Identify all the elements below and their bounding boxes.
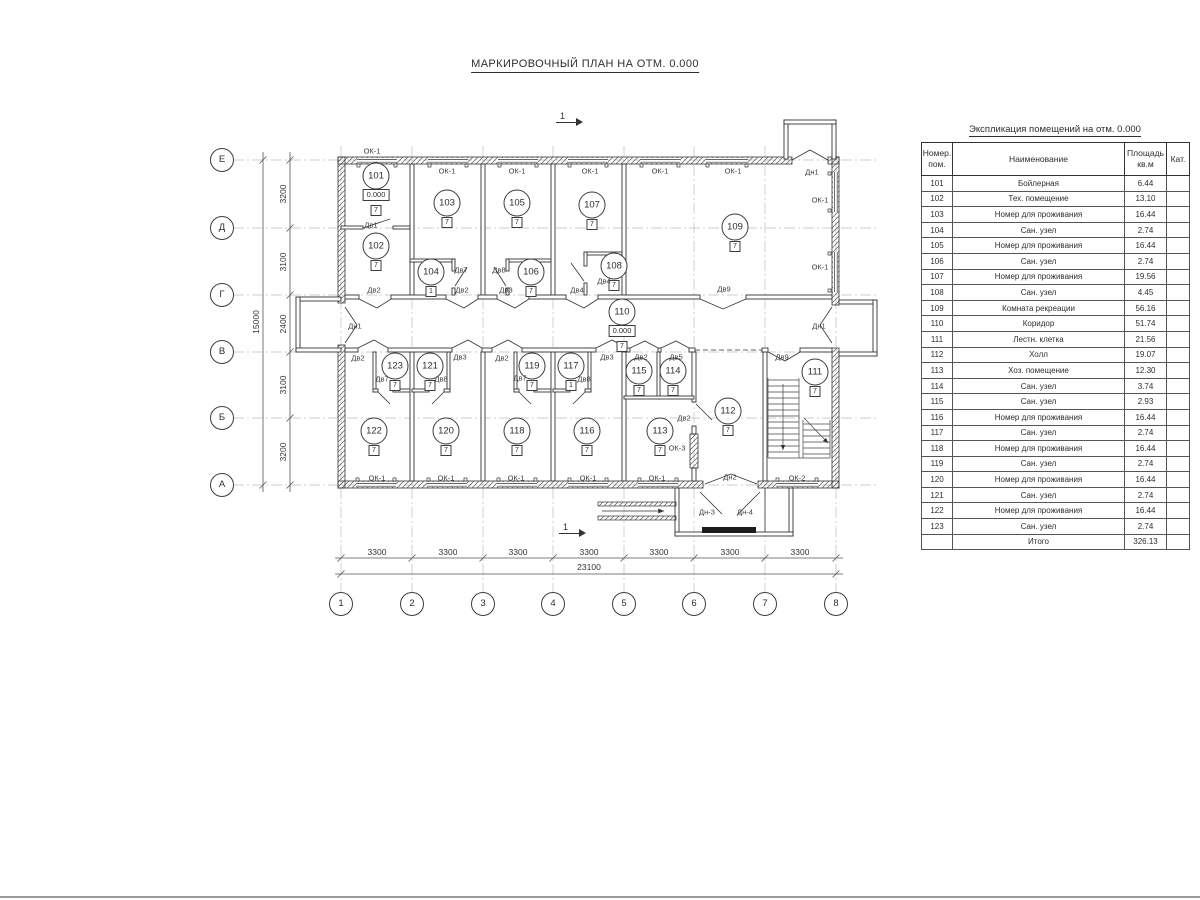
schedule-row: 123Сан. узел2.74: [922, 519, 1190, 535]
room-number-cell: 122: [922, 503, 953, 519]
schedule-row: 111Лестн. клетка21.56: [922, 331, 1190, 347]
schedule-row: 112Холл19.07: [922, 347, 1190, 363]
schedule-row: 110Коридор51.74: [922, 316, 1190, 332]
room-number-cell: 121: [922, 487, 953, 503]
room-category-cell: [1167, 456, 1190, 472]
room-area-cell: 19.56: [1125, 269, 1167, 285]
room-name-cell: Сан. узел: [953, 253, 1125, 269]
room-area-cell: 2.74: [1125, 222, 1167, 238]
schedule-row: 118Номер для проживания16.44: [922, 441, 1190, 457]
page-edge-line: [0, 896, 1200, 898]
room-area-cell: 4.45: [1125, 285, 1167, 301]
entrance-threshold: [702, 527, 756, 533]
schedule-row: 109Комната рекреации56.16: [922, 300, 1190, 316]
room-category-cell: [1167, 363, 1190, 379]
room-area-cell: 2.74: [1125, 519, 1167, 535]
room-area-cell: 13.10: [1125, 191, 1167, 207]
room-area-cell: 12.30: [1125, 363, 1167, 379]
room-name-cell: Коридор: [953, 316, 1125, 332]
room-number-cell: 108: [922, 285, 953, 301]
col-header-number: Номер.пом.: [922, 143, 953, 176]
room-name-cell: Бойлерная: [953, 176, 1125, 192]
schedule-row: 108Сан. узел4.45: [922, 285, 1190, 301]
room-name-cell: Хоз. помещение: [953, 363, 1125, 379]
room-name-cell: Номер для проживания: [953, 207, 1125, 223]
room-category-cell: [1167, 378, 1190, 394]
room-category-cell: [1167, 269, 1190, 285]
room-name-cell: Сан. узел: [953, 425, 1125, 441]
total-label: Итого: [953, 534, 1125, 550]
room-number-cell: 102: [922, 191, 953, 207]
col-header-name: Наименование: [953, 143, 1125, 176]
room-area-cell: 19.07: [1125, 347, 1167, 363]
room-name-cell: Номер для проживания: [953, 409, 1125, 425]
room-name-cell: Лестн. клетка: [953, 331, 1125, 347]
room-area-cell: 16.44: [1125, 207, 1167, 223]
room-category-cell: [1167, 519, 1190, 535]
room-area-cell: 16.44: [1125, 441, 1167, 457]
room-number-cell: 107: [922, 269, 953, 285]
schedule-row: 114Сан. узел3.74: [922, 378, 1190, 394]
room-category-cell: [1167, 285, 1190, 301]
room-number-cell: 109: [922, 300, 953, 316]
col-header-area: Площадькв.м: [1125, 143, 1167, 176]
room-area-cell: 2.93: [1125, 394, 1167, 410]
room-number-cell: 106: [922, 253, 953, 269]
schedule-row: 113Хоз. помещение12.30: [922, 363, 1190, 379]
room-category-cell: [1167, 425, 1190, 441]
room-area-cell: 16.44: [1125, 238, 1167, 254]
room-category-cell: [1167, 316, 1190, 332]
room-category-cell: [1167, 347, 1190, 363]
interior-walls: [296, 120, 877, 536]
room-number-cell: 119: [922, 456, 953, 472]
room-category-cell: [1167, 300, 1190, 316]
room-category-cell: [1167, 253, 1190, 269]
room-category-cell: [1167, 409, 1190, 425]
ramp: [598, 502, 676, 520]
room-category-cell: [1167, 394, 1190, 410]
room-schedule: Экспликация помещений на отм. 0.000 Номе…: [921, 124, 1189, 550]
schedule-total-row: Итого326.13: [922, 534, 1190, 550]
room-number-cell: 112: [922, 347, 953, 363]
room-name-cell: Сан. узел: [953, 394, 1125, 410]
empty-cell: [1167, 534, 1190, 550]
room-number-cell: 123: [922, 519, 953, 535]
schedule-row: 121Сан. узел2.74: [922, 487, 1190, 503]
room-name-cell: Тех. помещение: [953, 191, 1125, 207]
schedule-row: 103Номер для проживания16.44: [922, 207, 1190, 223]
room-name-cell: Сан. узел: [953, 285, 1125, 301]
room-category-cell: [1167, 238, 1190, 254]
room-number-cell: 120: [922, 472, 953, 488]
schedule-row: 105Номер для проживания16.44: [922, 238, 1190, 254]
col-header-category: Кат.: [1167, 143, 1190, 176]
room-name-cell: Номер для проживания: [953, 238, 1125, 254]
room-area-cell: 16.44: [1125, 503, 1167, 519]
schedule-row: 102Тех. помещение13.10: [922, 191, 1190, 207]
room-name-cell: Сан. узел: [953, 222, 1125, 238]
room-category-cell: [1167, 207, 1190, 223]
room-number-cell: 114: [922, 378, 953, 394]
room-area-cell: 2.74: [1125, 456, 1167, 472]
room-number-cell: 110: [922, 316, 953, 332]
room-number-cell: 111: [922, 331, 953, 347]
room-area-cell: 56.16: [1125, 300, 1167, 316]
schedule-row: 122Номер для проживания16.44: [922, 503, 1190, 519]
stairs: [768, 378, 830, 458]
room-name-cell: Номер для проживания: [953, 503, 1125, 519]
room-area-cell: 2.74: [1125, 487, 1167, 503]
empty-cell: [922, 534, 953, 550]
room-number-cell: 118: [922, 441, 953, 457]
room-number-cell: 113: [922, 363, 953, 379]
schedule-row: 117Сан. узел2.74: [922, 425, 1190, 441]
schedule-table: Номер.пом. Наименование Площадькв.м Кат.…: [921, 142, 1190, 550]
room-name-cell: Сан. узел: [953, 487, 1125, 503]
drawing-sheet: МАРКИРОВОЧНЫЙ ПЛАН НА ОТМ. 0.000: [0, 0, 1200, 900]
room-number-cell: 105: [922, 238, 953, 254]
door-leaves: [345, 150, 832, 514]
schedule-row: 120Номер для проживания16.44: [922, 472, 1190, 488]
room-area-cell: 21.56: [1125, 331, 1167, 347]
schedule-row: 101Бойлерная6.44: [922, 176, 1190, 192]
room-name-cell: Холл: [953, 347, 1125, 363]
room-category-cell: [1167, 503, 1190, 519]
schedule-row: 115Сан. узел2.93: [922, 394, 1190, 410]
room-area-cell: 2.74: [1125, 425, 1167, 441]
room-area-cell: 16.44: [1125, 409, 1167, 425]
room-area-cell: 51.74: [1125, 316, 1167, 332]
room-area-cell: 3.74: [1125, 378, 1167, 394]
schedule-title: Экспликация помещений на отм. 0.000: [921, 124, 1189, 135]
room-name-cell: Номер для проживания: [953, 269, 1125, 285]
room-name-cell: Сан. узел: [953, 378, 1125, 394]
room-category-cell: [1167, 176, 1190, 192]
room-number-cell: 116: [922, 409, 953, 425]
interior-window-ok3: [690, 434, 698, 468]
schedule-row: 116Номер для проживания16.44: [922, 409, 1190, 425]
room-number-cell: 115: [922, 394, 953, 410]
room-category-cell: [1167, 472, 1190, 488]
room-category-cell: [1167, 331, 1190, 347]
schedule-row: 106Сан. узел2.74: [922, 253, 1190, 269]
schedule-row: 107Номер для проживания19.56: [922, 269, 1190, 285]
room-category-cell: [1167, 487, 1190, 503]
room-name-cell: Номер для проживания: [953, 472, 1125, 488]
room-number-cell: 117: [922, 425, 953, 441]
room-name-cell: Номер для проживания: [953, 441, 1125, 457]
room-area-cell: 2.74: [1125, 253, 1167, 269]
room-area-cell: 16.44: [1125, 472, 1167, 488]
room-category-cell: [1167, 191, 1190, 207]
room-area-cell: 6.44: [1125, 176, 1167, 192]
schedule-row: 104Сан. узел2.74: [922, 222, 1190, 238]
room-number-cell: 101: [922, 176, 953, 192]
room-number-cell: 104: [922, 222, 953, 238]
room-name-cell: Сан. узел: [953, 519, 1125, 535]
room-name-cell: Комната рекреации: [953, 300, 1125, 316]
schedule-row: 119Сан. узел2.74: [922, 456, 1190, 472]
room-category-cell: [1167, 222, 1190, 238]
room-name-cell: Сан. узел: [953, 456, 1125, 472]
room-number-cell: 103: [922, 207, 953, 223]
room-category-cell: [1167, 441, 1190, 457]
total-area: 326.13: [1125, 534, 1167, 550]
